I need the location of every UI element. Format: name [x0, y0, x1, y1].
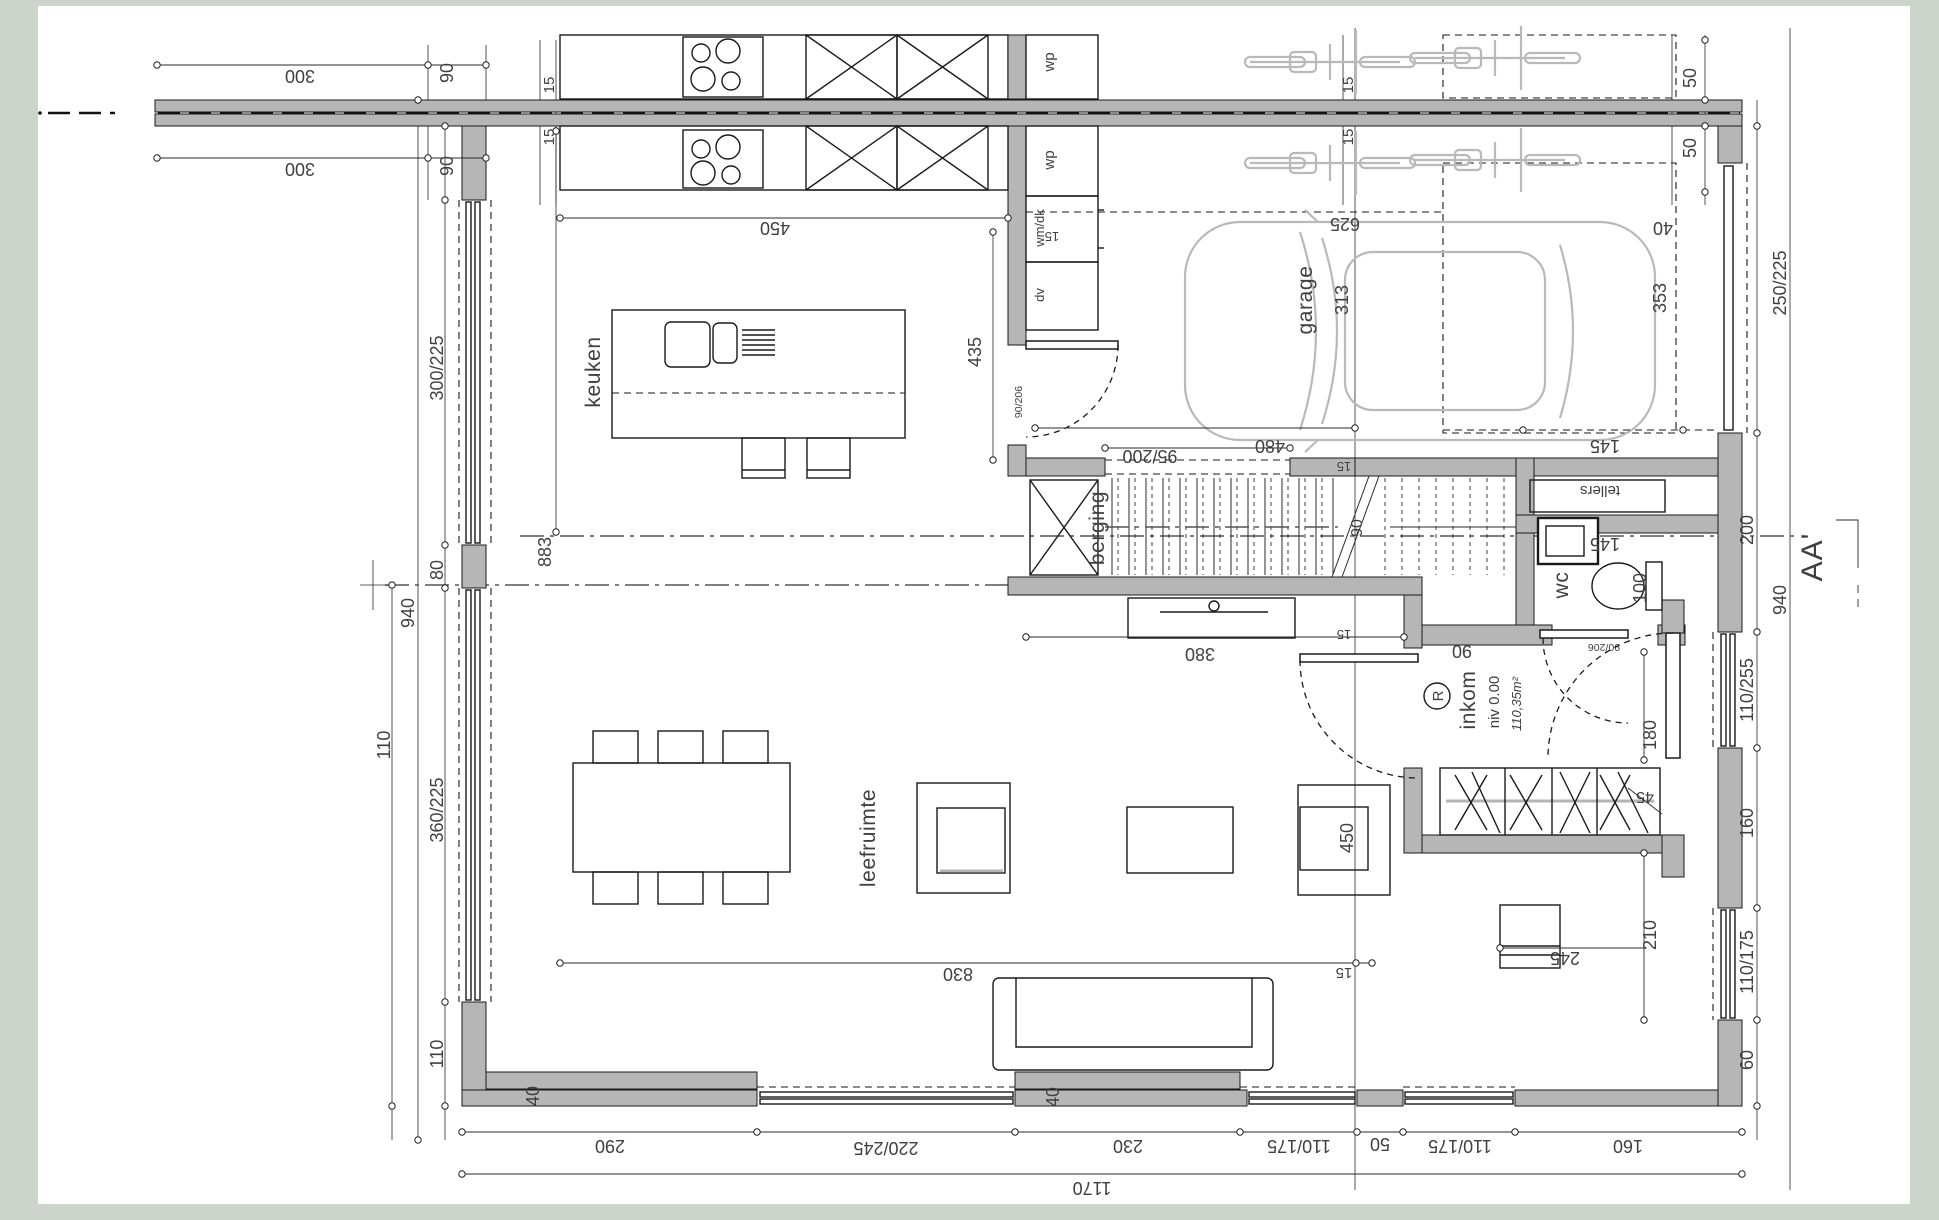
- dim-90-b: 90: [437, 156, 457, 176]
- dim-210: 210: [1640, 920, 1660, 950]
- wm-dk-label: wm/dk: [1032, 209, 1047, 248]
- wall-frontdoor-stub: [1662, 600, 1684, 633]
- room-label-inkom: inkom: [1457, 670, 1480, 729]
- inkom-area-label: 110,35m²: [1509, 676, 1524, 731]
- dim-15-stair-a: 15: [1337, 459, 1351, 474]
- dim-15-sofa: 15: [1336, 964, 1353, 981]
- dim-15-stair-b: 15: [1337, 627, 1351, 642]
- paper: [38, 6, 1910, 1204]
- dim-220-245: 220/245: [853, 1138, 918, 1158]
- dim-15-wm: 15: [1045, 229, 1059, 244]
- floor-plan-svg: 90/206 90/206: [0, 0, 1939, 1220]
- dim-40-bl: 40: [523, 1086, 543, 1106]
- dim-110-255: 110/255: [1737, 658, 1757, 722]
- dim-245: 245: [1550, 948, 1580, 968]
- dim-290: 290: [595, 1136, 625, 1156]
- ref-mark-label: R: [1430, 690, 1447, 701]
- wc-depth-label: 100: [1630, 573, 1650, 603]
- wall-bottom: [462, 1090, 757, 1106]
- dim-940-left: 940: [398, 598, 418, 628]
- floor-plan-sheet: 90/206 90/206: [0, 0, 1939, 1220]
- dim-883: 883: [535, 537, 555, 567]
- wall-wc-left: [1516, 458, 1534, 625]
- dim-940-right: 940: [1770, 585, 1790, 615]
- dim-110-upper: 110: [374, 731, 394, 760]
- front-door-dim: 180: [1640, 720, 1660, 750]
- party-wall: [155, 100, 1742, 126]
- wp-label: wp: [1041, 150, 1058, 170]
- dim-15-d: 15: [1340, 129, 1357, 146]
- dim-40-garage: 40: [1653, 218, 1673, 238]
- wc-width-label: 145: [1590, 534, 1620, 554]
- stair-width-label: 90: [1349, 519, 1366, 537]
- dim-50-bottom: 50: [1370, 1134, 1390, 1154]
- wall-closet-bottom: [1422, 835, 1662, 853]
- wall-inkom-left: [1404, 595, 1422, 648]
- door-size-label: 90/206: [1013, 386, 1025, 418]
- wall-left: [462, 126, 486, 200]
- dim-15-b: 15: [541, 129, 558, 146]
- dim-110-175-bottom-a: 110/175: [1267, 1136, 1331, 1156]
- wall-berging-bottom: [1008, 577, 1422, 595]
- dim-1170: 1170: [1073, 1178, 1112, 1198]
- dim-15-c: 15: [1340, 77, 1357, 94]
- dim-625: 625: [1330, 214, 1360, 234]
- dim-250-225: 250/225: [1770, 250, 1790, 315]
- washbasin-icon: [1538, 518, 1598, 564]
- dim-435: 435: [965, 337, 985, 367]
- wp-label-neighbor: wp: [1041, 52, 1058, 72]
- room-label-garage: garage: [1294, 266, 1317, 335]
- dv-label: dv: [1032, 288, 1047, 302]
- dim-300-b: 300: [285, 159, 315, 179]
- section-label: AA': [1796, 533, 1829, 582]
- dim-80: 80: [427, 560, 447, 580]
- dim-40-bm: 40: [1043, 1087, 1063, 1107]
- dim-145-garage: 145: [1590, 436, 1620, 456]
- dim-15-a: 15: [541, 77, 558, 94]
- dim-90-a: 90: [437, 63, 457, 83]
- room-label-berging: berging: [1086, 491, 1109, 565]
- dim-380: 380: [1185, 644, 1215, 664]
- dim-160-right: 160: [1737, 808, 1757, 838]
- dim-360-225: 360/225: [427, 777, 447, 842]
- dim-110-175-right: 110/175: [1737, 930, 1757, 994]
- dim-60: 60: [1737, 1050, 1757, 1070]
- wall-kitchen-garage: [1008, 126, 1026, 345]
- dim-50-a: 50: [1680, 68, 1700, 88]
- dim-300-225: 300/225: [427, 335, 447, 400]
- dim-95-200: 95/200: [1122, 446, 1177, 466]
- dim-450-keuken: 450: [760, 218, 790, 238]
- garage-width-label: 313: [1332, 285, 1352, 315]
- room-label-leefruimte: leefruimte: [857, 789, 880, 887]
- tellers-label: tellers: [1580, 482, 1620, 499]
- dim-50-b: 50: [1680, 138, 1700, 158]
- dim-830: 830: [943, 964, 973, 984]
- dim-160-bottom: 160: [1613, 1136, 1643, 1156]
- dim-200: 200: [1737, 515, 1757, 545]
- wall-inkom-top: [1422, 625, 1552, 645]
- room-label-keuken: keuken: [582, 336, 605, 407]
- dim-300-a: 300: [285, 66, 315, 86]
- inkom-door-width: 90: [1452, 641, 1472, 661]
- dim-230: 230: [1113, 1136, 1143, 1156]
- wall-right: [1718, 126, 1742, 163]
- armchair-dim: 450: [1337, 823, 1357, 853]
- inner-leaf: [1015, 1072, 1240, 1089]
- dim-480: 480: [1255, 436, 1285, 456]
- inkom-level-label: niv 0.00: [1486, 676, 1503, 729]
- dim-353: 353: [1650, 283, 1670, 313]
- wall-berging-top: [1026, 458, 1105, 476]
- room-label-wc: wc: [1550, 572, 1573, 600]
- dim-110-lower: 110: [427, 1040, 447, 1069]
- dim-110-175-bottom-b: 110/175: [1428, 1136, 1492, 1156]
